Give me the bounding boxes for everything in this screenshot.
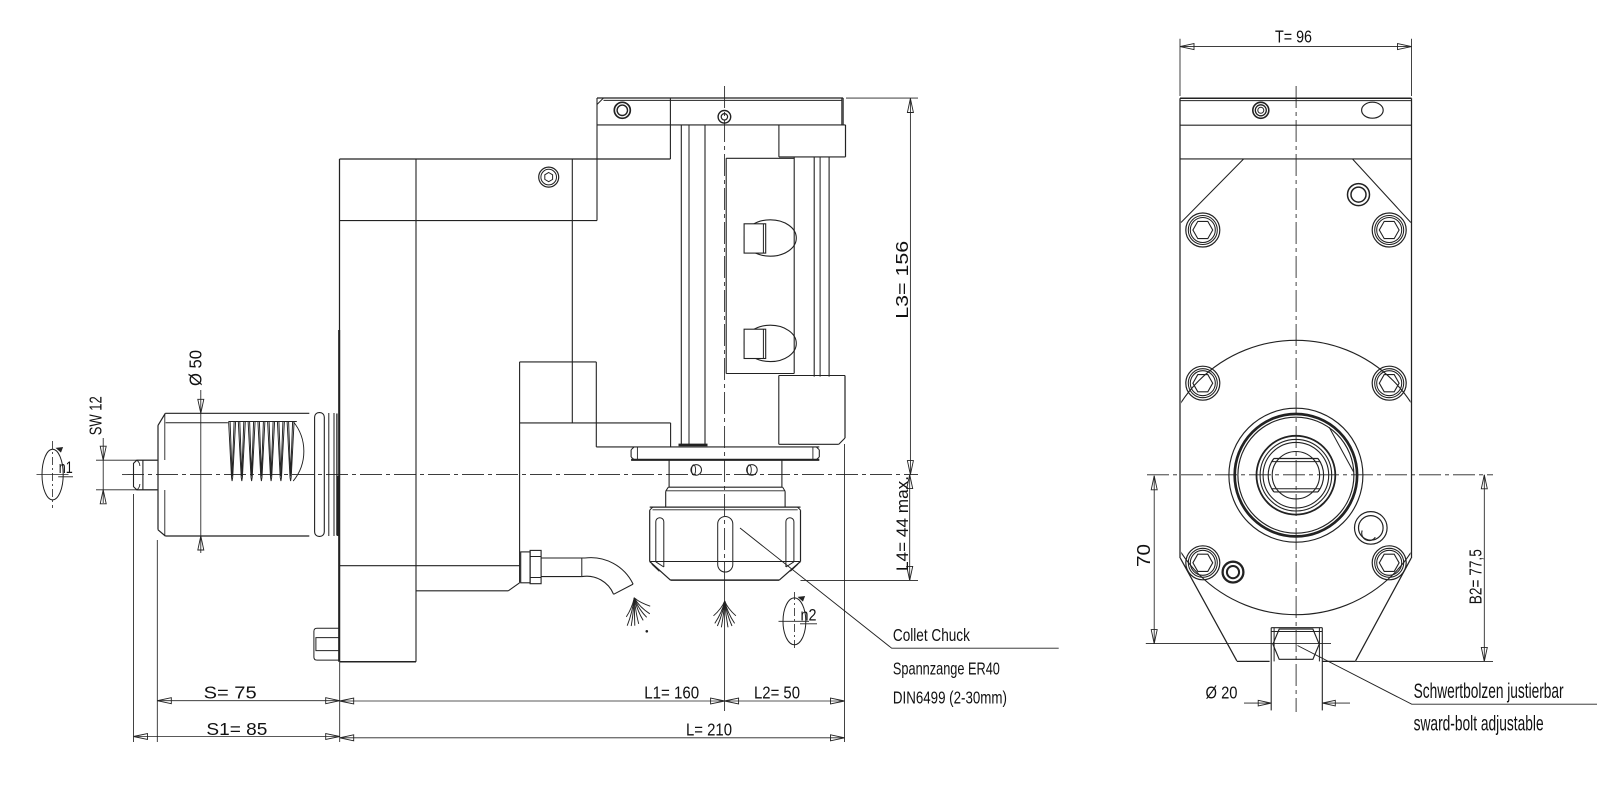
svg-text:L1= 160: L1= 160 bbox=[644, 683, 699, 703]
svg-text:Ø 50: Ø 50 bbox=[185, 350, 205, 386]
svg-text:L2= 50: L2= 50 bbox=[754, 682, 800, 702]
svg-text:Spannzange ER40: Spannzange ER40 bbox=[893, 659, 1000, 679]
svg-text:S= 75: S= 75 bbox=[204, 683, 257, 703]
svg-text:S1= 85: S1= 85 bbox=[206, 719, 267, 739]
svg-text:DIN6499 (2-30mm): DIN6499 (2-30mm) bbox=[893, 688, 1007, 708]
svg-text:Schwertbolzen justierbar: Schwertbolzen justierbar bbox=[1414, 679, 1564, 703]
svg-text:T= 96: T= 96 bbox=[1275, 26, 1312, 46]
svg-text:L4= 44 max.: L4= 44 max. bbox=[894, 476, 912, 571]
svg-text:SW 12: SW 12 bbox=[86, 396, 106, 435]
svg-text:L= 210: L= 210 bbox=[686, 720, 732, 740]
svg-text:n2: n2 bbox=[801, 605, 817, 624]
svg-text:Ø 20: Ø 20 bbox=[1206, 683, 1238, 703]
svg-text:sward-bolt adjustable: sward-bolt adjustable bbox=[1414, 712, 1544, 736]
svg-text:Collet Chuck: Collet Chuck bbox=[893, 625, 970, 645]
svg-text:B2= 77,5: B2= 77,5 bbox=[1466, 549, 1486, 604]
svg-text:70: 70 bbox=[1134, 544, 1154, 567]
svg-text:n1: n1 bbox=[59, 458, 73, 477]
svg-text:L3= 156: L3= 156 bbox=[892, 241, 912, 319]
